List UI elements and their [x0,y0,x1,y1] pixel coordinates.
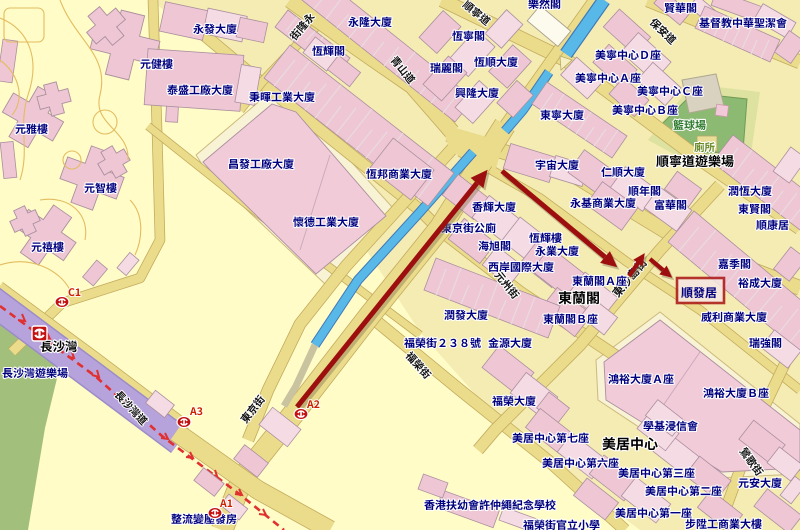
svg-text:元健樓: 元健樓 [140,56,173,72]
svg-text:瑞強閣: 瑞強閣 [749,335,782,351]
svg-text:福榮街２３８號: 福榮街２３８號 [404,335,481,351]
svg-text:東賢閣: 東賢閣 [738,201,771,217]
svg-text:西岸國際大廈: 西岸國際大廈 [488,259,554,275]
svg-text:香輝大廈: 香輝大廈 [472,199,516,215]
svg-text:長沙灣遊樂場: 長沙灣遊樂場 [2,365,68,381]
svg-text:整流變壓發房: 整流變壓發房 [171,511,237,527]
svg-text:美寧中心Ｃ座: 美寧中心Ｃ座 [637,83,703,99]
svg-text:興隆大廈: 興隆大廈 [455,85,499,101]
svg-text:賢華閣: 賢華閣 [664,0,697,16]
svg-text:永基商業大廈: 永基商業大廈 [570,195,636,211]
svg-text:仁順大廈: 仁順大廈 [601,164,645,180]
svg-text:秉暉工業大廈: 秉暉工業大廈 [249,89,315,105]
svg-text:永發大廈: 永發大廈 [193,21,237,37]
svg-text:美寧中心Ｄ座: 美寧中心Ｄ座 [595,47,661,63]
svg-text:威利商業大廈: 威利商業大廈 [701,309,767,325]
svg-text:泰盛工廠大廈: 泰盛工廠大廈 [167,82,233,98]
svg-text:美居中心第七座: 美居中心第七座 [512,430,589,446]
svg-text:基督教中華聖潔會: 基督教中華聖潔會 [699,15,787,31]
svg-text:A3: A3 [189,404,203,419]
svg-text:順發居: 順發居 [681,284,717,301]
svg-text:懷德工業大廈: 懷德工業大廈 [293,214,359,230]
svg-text:鴻裕大廈Ｂ座: 鴻裕大廈Ｂ座 [703,385,769,401]
svg-text:瑞麗閣: 瑞麗閣 [430,60,463,76]
svg-text:裕成大廈: 裕成大廈 [738,275,782,291]
svg-text:永隆大廈: 永隆大廈 [348,14,392,30]
svg-text:順康居: 順康居 [756,217,789,233]
svg-text:福榮街官立小學: 福榮街官立小學 [523,517,600,530]
svg-text:恆輝閣: 恆輝閣 [312,43,345,59]
svg-text:美居中心: 美居中心 [602,434,658,454]
svg-text:金源大廈: 金源大廈 [488,335,532,351]
svg-text:香港扶幼會許仲繩紀念學校: 香港扶幼會許仲繩紀念學校 [424,497,556,513]
svg-text:元智樓: 元智樓 [84,180,117,196]
svg-text:美居中心第六座: 美居中心第六座 [542,455,619,471]
svg-text:籃球場: 籃球場 [673,117,706,133]
svg-text:恆寧閣: 恆寧閣 [452,28,485,44]
svg-text:學基浸信會: 學基浸信會 [643,418,698,434]
svg-text:海旭閣: 海旭閣 [478,238,511,254]
svg-text:宇宙大廈: 宇宙大廈 [535,157,579,173]
svg-text:潤恆大廈: 潤恆大廈 [728,183,772,199]
svg-text:A1: A1 [219,496,233,511]
svg-text:美居中心第一座: 美居中心第一座 [615,505,692,521]
svg-text:昌發工廠大廈: 昌發工廠大廈 [228,156,294,172]
svg-text:潤發大廈: 潤發大廈 [444,307,488,323]
svg-text:東蘭閣: 東蘭閣 [558,288,600,308]
svg-text:樂然閣: 樂然閣 [528,0,561,12]
svg-text:A2: A2 [306,397,320,412]
svg-text:元安大廈: 元安大廈 [738,475,782,491]
svg-text:東蘭閣Ｂ座: 東蘭閣Ｂ座 [543,311,598,327]
svg-text:嘉季閣: 嘉季閣 [718,256,751,272]
svg-text:永業大廈: 永業大廈 [535,243,579,259]
svg-text:廁所: 廁所 [694,140,715,155]
svg-text:美居中心第三座: 美居中心第三座 [618,465,695,481]
svg-text:富華閣: 富華閣 [654,197,687,213]
svg-text:福榮大廈: 福榮大廈 [492,393,536,409]
svg-text:美寧中心Ｂ座: 美寧中心Ｂ座 [612,102,678,118]
svg-text:東蘭閣Ａ座: 東蘭閣Ａ座 [572,273,627,289]
svg-text:美寧中心Ａ座: 美寧中心Ａ座 [575,70,641,86]
svg-text:東寧大廈: 東寧大廈 [540,107,584,123]
svg-text:C1: C1 [68,285,81,300]
svg-text:美居中心第二座: 美居中心第二座 [645,483,722,499]
svg-text:元雅樓: 元雅樓 [15,121,48,137]
svg-text:步陞工商業大樓: 步陞工商業大樓 [685,516,762,530]
svg-text:恆邦商業大廈: 恆邦商業大廈 [366,166,432,182]
svg-text:恆順大廈: 恆順大廈 [474,54,518,70]
svg-text:鴻裕大廈Ａ座: 鴻裕大廈Ａ座 [608,371,674,387]
svg-text:元禧樓: 元禧樓 [31,239,64,255]
